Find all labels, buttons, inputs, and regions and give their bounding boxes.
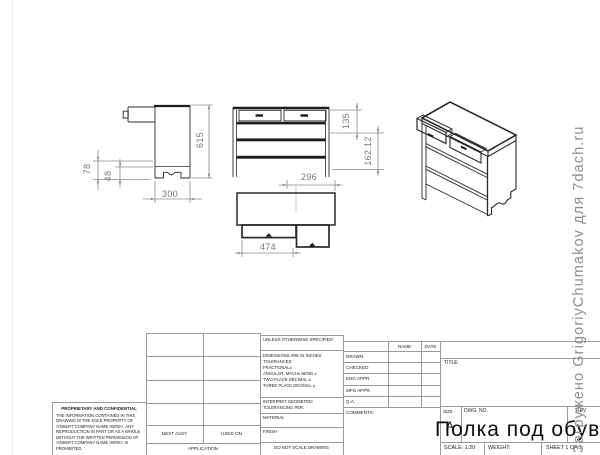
weight-label: WEIGHT:: [488, 445, 510, 451]
grid-line-h: [343, 351, 440, 352]
name-column-header: NAME: [388, 344, 421, 349]
grid-line-v: [203, 333, 204, 443]
grid-line-h: [52, 402, 146, 403]
drawing-sheet: 615 78 48 300 135 1: [0, 0, 600, 455]
side-view-dimensions: [93, 105, 213, 203]
grid-line-h: [260, 350, 343, 351]
date-column-header: DATE: [421, 344, 440, 349]
do-not-scale-label: DO NOT SCALE DRAWING: [260, 445, 343, 450]
next-assy-label: NEXT ASSY: [146, 431, 203, 436]
grid-line-v: [421, 341, 422, 407]
grid-line-h: [343, 385, 440, 386]
material-label: MATERIAL: [263, 415, 285, 420]
dim-48: 48: [103, 171, 113, 182]
used-on-label: USED ON: [203, 431, 260, 436]
row-checked: CHECKED: [346, 365, 368, 370]
size-label: SIZE: [443, 409, 453, 414]
isometric-view-drawing: [417, 102, 516, 216]
dwg-no-label: DWG. NO.: [464, 409, 488, 415]
grid-line-v: [343, 335, 344, 455]
grid-line-h: [260, 442, 343, 443]
row-comments: COMMENTS:: [346, 410, 374, 415]
side-view-dim-arrows: [97, 105, 211, 200]
dim-296: 296: [301, 172, 317, 182]
application-label: APPLICATION: [146, 446, 260, 451]
grid-line-v: [388, 341, 389, 407]
dim-162-12: 162.12: [363, 136, 373, 165]
spec-tolerances: DIMENSIONS ARE IN INCHES TOLERANCES: FRA…: [263, 353, 321, 390]
row-mfg-appr: MFG APPR.: [346, 388, 371, 393]
grid-line-h: [343, 373, 440, 374]
finish-label: FINISH: [263, 429, 277, 434]
grid-line-h: [260, 427, 343, 428]
grid-line-h: [343, 362, 440, 363]
title-label: TITLE:: [444, 361, 459, 367]
proprietary-body: THE INFORMATION CONTAINED IN THIS DRAWIN…: [56, 413, 144, 451]
row-eng-appr: ENG APPR.: [346, 376, 371, 381]
grid-line-v: [541, 442, 542, 455]
grid-line-h: [343, 396, 440, 397]
dim-78: 78: [82, 164, 92, 175]
grid-line-v: [52, 402, 53, 455]
scale-label: SCALE: 1:20: [444, 445, 475, 451]
grid-line-h: [260, 413, 343, 414]
grid-line-h: [343, 341, 600, 342]
front-view-drawing: [233, 107, 329, 177]
dim-615: 615: [195, 132, 205, 148]
grid-line-h: [260, 335, 343, 336]
grid-line-h: [146, 443, 260, 444]
row-qa: Q.A.: [346, 399, 355, 404]
interpret-geometric-label: INTERPRET GEOMETRIC TOLERANCING PER:: [263, 399, 313, 410]
grid-line-h: [343, 407, 440, 408]
grid-line-h: [260, 397, 343, 398]
spec-header: UNLESS OTHERWISE SPECIFIED:: [263, 337, 334, 342]
grid-line-v: [484, 442, 485, 455]
watermark-text: Загружено GrigoriyChumakov для 7dach.ru: [571, 125, 587, 453]
proprietary-header: PROPRIETARY AND CONFIDENTIAL: [54, 406, 144, 411]
row-drawn: DRAWN: [346, 354, 363, 359]
grid-line-v: [146, 333, 147, 455]
dim-135: 135: [341, 113, 351, 129]
dim-474: 474: [260, 242, 276, 252]
top-view-drawing: [237, 193, 335, 247]
grid-line-v: [260, 333, 261, 455]
dim-300: 300: [162, 189, 178, 199]
